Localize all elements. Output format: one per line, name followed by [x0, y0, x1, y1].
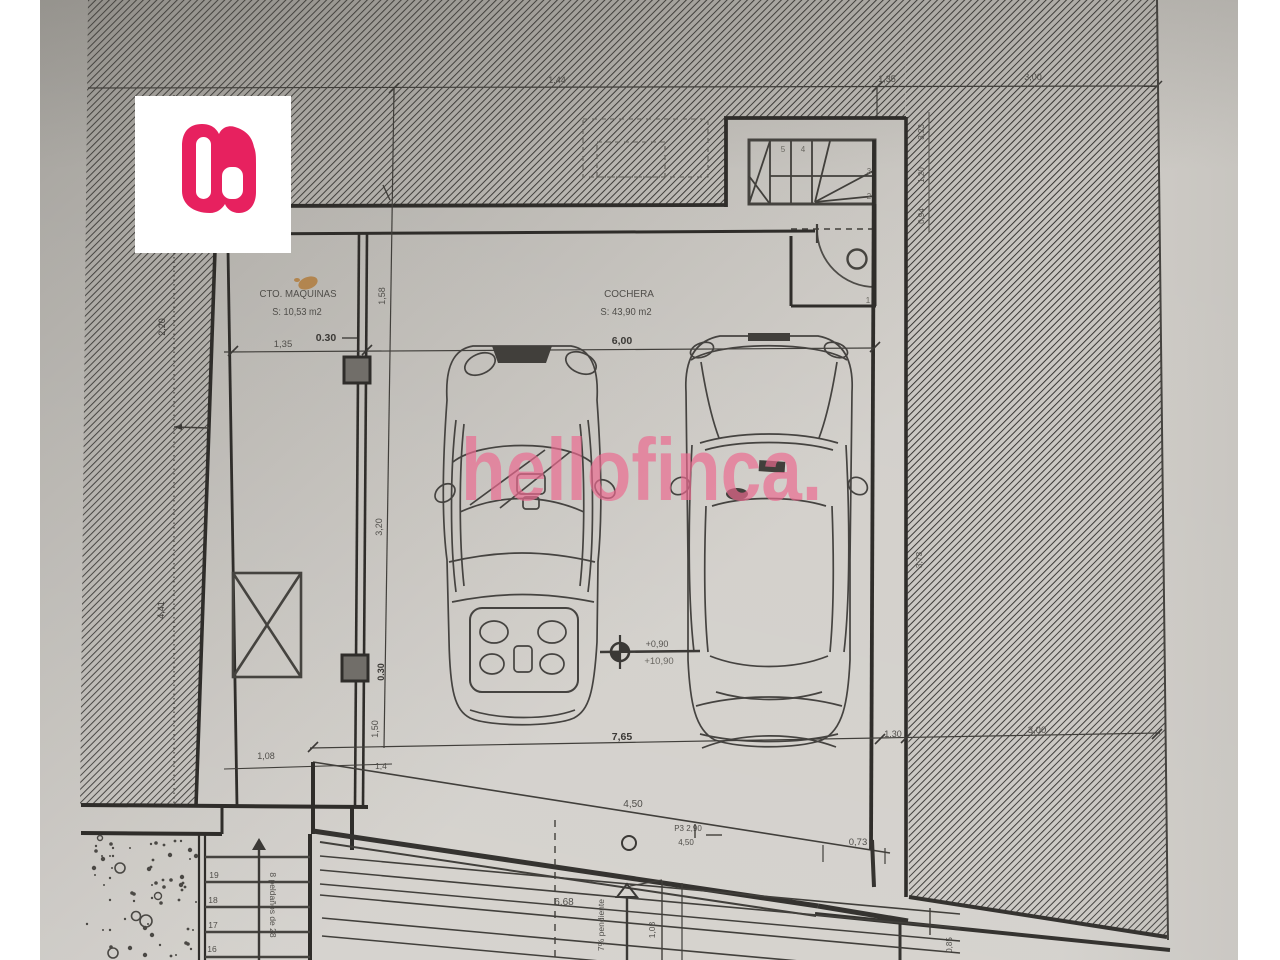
- svg-text:1,50: 1,50: [370, 720, 380, 738]
- svg-text:1: 1: [866, 296, 871, 305]
- svg-text:4,50: 4,50: [623, 799, 643, 810]
- svg-text:7,65: 7,65: [612, 731, 633, 743]
- svg-text:1,4: 1,4: [375, 761, 387, 771]
- svg-text:4,50: 4,50: [678, 838, 694, 847]
- svg-text:5: 5: [781, 145, 786, 154]
- svg-text:6,00: 6,00: [612, 335, 633, 347]
- svg-text:19: 19: [209, 870, 219, 880]
- svg-text:2,20: 2,20: [157, 318, 167, 336]
- svg-text:1,20: 1,20: [917, 167, 926, 183]
- svg-text:3: 3: [867, 167, 872, 176]
- svg-text:1,44: 1,44: [548, 75, 566, 85]
- svg-text:17: 17: [208, 920, 218, 930]
- svg-text:3,73: 3,73: [914, 551, 924, 568]
- svg-text:S: 43,90 m2: S: 43,90 m2: [600, 307, 651, 318]
- svg-text:1,08: 1,08: [647, 921, 657, 938]
- svg-text:1,35: 1,35: [274, 339, 293, 350]
- svg-text:0.30: 0.30: [376, 663, 386, 681]
- svg-text:7% pendiente: 7% pendiente: [596, 899, 606, 951]
- svg-text:4: 4: [801, 145, 806, 154]
- svg-text:1,08: 1,08: [257, 751, 275, 761]
- svg-text:hellofinca.: hellofinca.: [461, 422, 822, 520]
- svg-text:0,85: 0,85: [945, 937, 954, 953]
- svg-text:2: 2: [867, 192, 872, 201]
- svg-text:0,94: 0,94: [917, 208, 926, 224]
- svg-text:COCHERA: COCHERA: [604, 289, 654, 300]
- svg-text:8 peldaños de 28: 8 peldaños de 28: [268, 872, 278, 937]
- svg-text:1,30: 1,30: [884, 729, 902, 739]
- svg-text:P3 2,90: P3 2,90: [674, 824, 702, 833]
- svg-text:6,68: 6,68: [554, 897, 574, 908]
- svg-text:18: 18: [208, 895, 218, 905]
- svg-text:3,00: 3,00: [1028, 725, 1047, 736]
- svg-text:4,41: 4,41: [156, 601, 166, 619]
- svg-text:3,20: 3,20: [374, 518, 384, 536]
- svg-text:0.30: 0.30: [316, 332, 337, 344]
- svg-text:1,35: 1,35: [878, 74, 896, 84]
- svg-text:CTO. MAQUINAS: CTO. MAQUINAS: [259, 289, 336, 300]
- svg-text:3,23: 3,23: [917, 124, 926, 140]
- svg-text:S: 10,53 m2: S: 10,53 m2: [272, 307, 322, 318]
- svg-text:1,58: 1,58: [377, 287, 387, 305]
- svg-text:16: 16: [207, 944, 217, 954]
- svg-text:0,73: 0,73: [849, 837, 868, 848]
- svg-text:+10,90: +10,90: [644, 656, 673, 667]
- svg-text:3,00: 3,00: [1024, 72, 1042, 82]
- svg-text:+0,90: +0,90: [646, 639, 669, 649]
